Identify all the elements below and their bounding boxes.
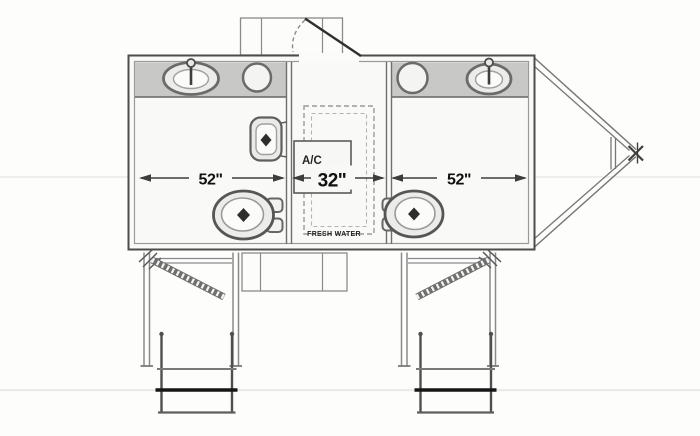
tank-box-outline — [242, 253, 347, 291]
tank-box — [242, 253, 347, 291]
entry-door-right — [417, 260, 489, 297]
toilet-icon — [214, 191, 283, 239]
entry-landing-right — [398, 250, 501, 366]
door-panel-hatch-lines — [417, 260, 489, 297]
counter-basin-circle-icon — [398, 63, 428, 93]
entry-door-left — [152, 260, 224, 297]
entry-landing-left — [139, 250, 242, 366]
dim-center-label: 32" — [318, 171, 347, 192]
stringer-cap — [489, 332, 493, 336]
dim-left-label: 52" — [199, 172, 223, 189]
roof-vent-box — [241, 18, 343, 55]
mount-tick — [281, 122, 287, 123]
toilet-icon — [383, 191, 444, 237]
door-panel-hatch-lines — [152, 260, 224, 297]
floor-plan-canvas: A/C — [0, 0, 700, 436]
urinal-icon — [251, 118, 288, 161]
tongue-beam-top — [534, 58, 636, 150]
stringer-cap — [418, 332, 422, 336]
fresh-water-label: FRESH WATER — [307, 231, 361, 238]
dim-right-label: 52" — [447, 172, 471, 189]
floor-plan-page: A/C — [0, 0, 700, 436]
stringer-cap — [230, 332, 234, 336]
v-tongue-hitch — [534, 58, 643, 248]
ghost-band — [0, 389, 700, 391]
entry-steps-right — [415, 332, 497, 413]
mount-tick — [281, 156, 287, 157]
faucet-head — [485, 59, 493, 67]
ac-label: A/C — [302, 155, 322, 167]
entry-steps-left — [156, 332, 238, 413]
counter-basin-circle-icon — [243, 64, 271, 92]
faucet-head — [187, 59, 195, 67]
tongue-beam-bottom — [534, 157, 636, 248]
roof-vent-box-outline — [241, 18, 343, 55]
door-opening-gap — [299, 53, 359, 63]
stringer-cap — [159, 332, 163, 336]
